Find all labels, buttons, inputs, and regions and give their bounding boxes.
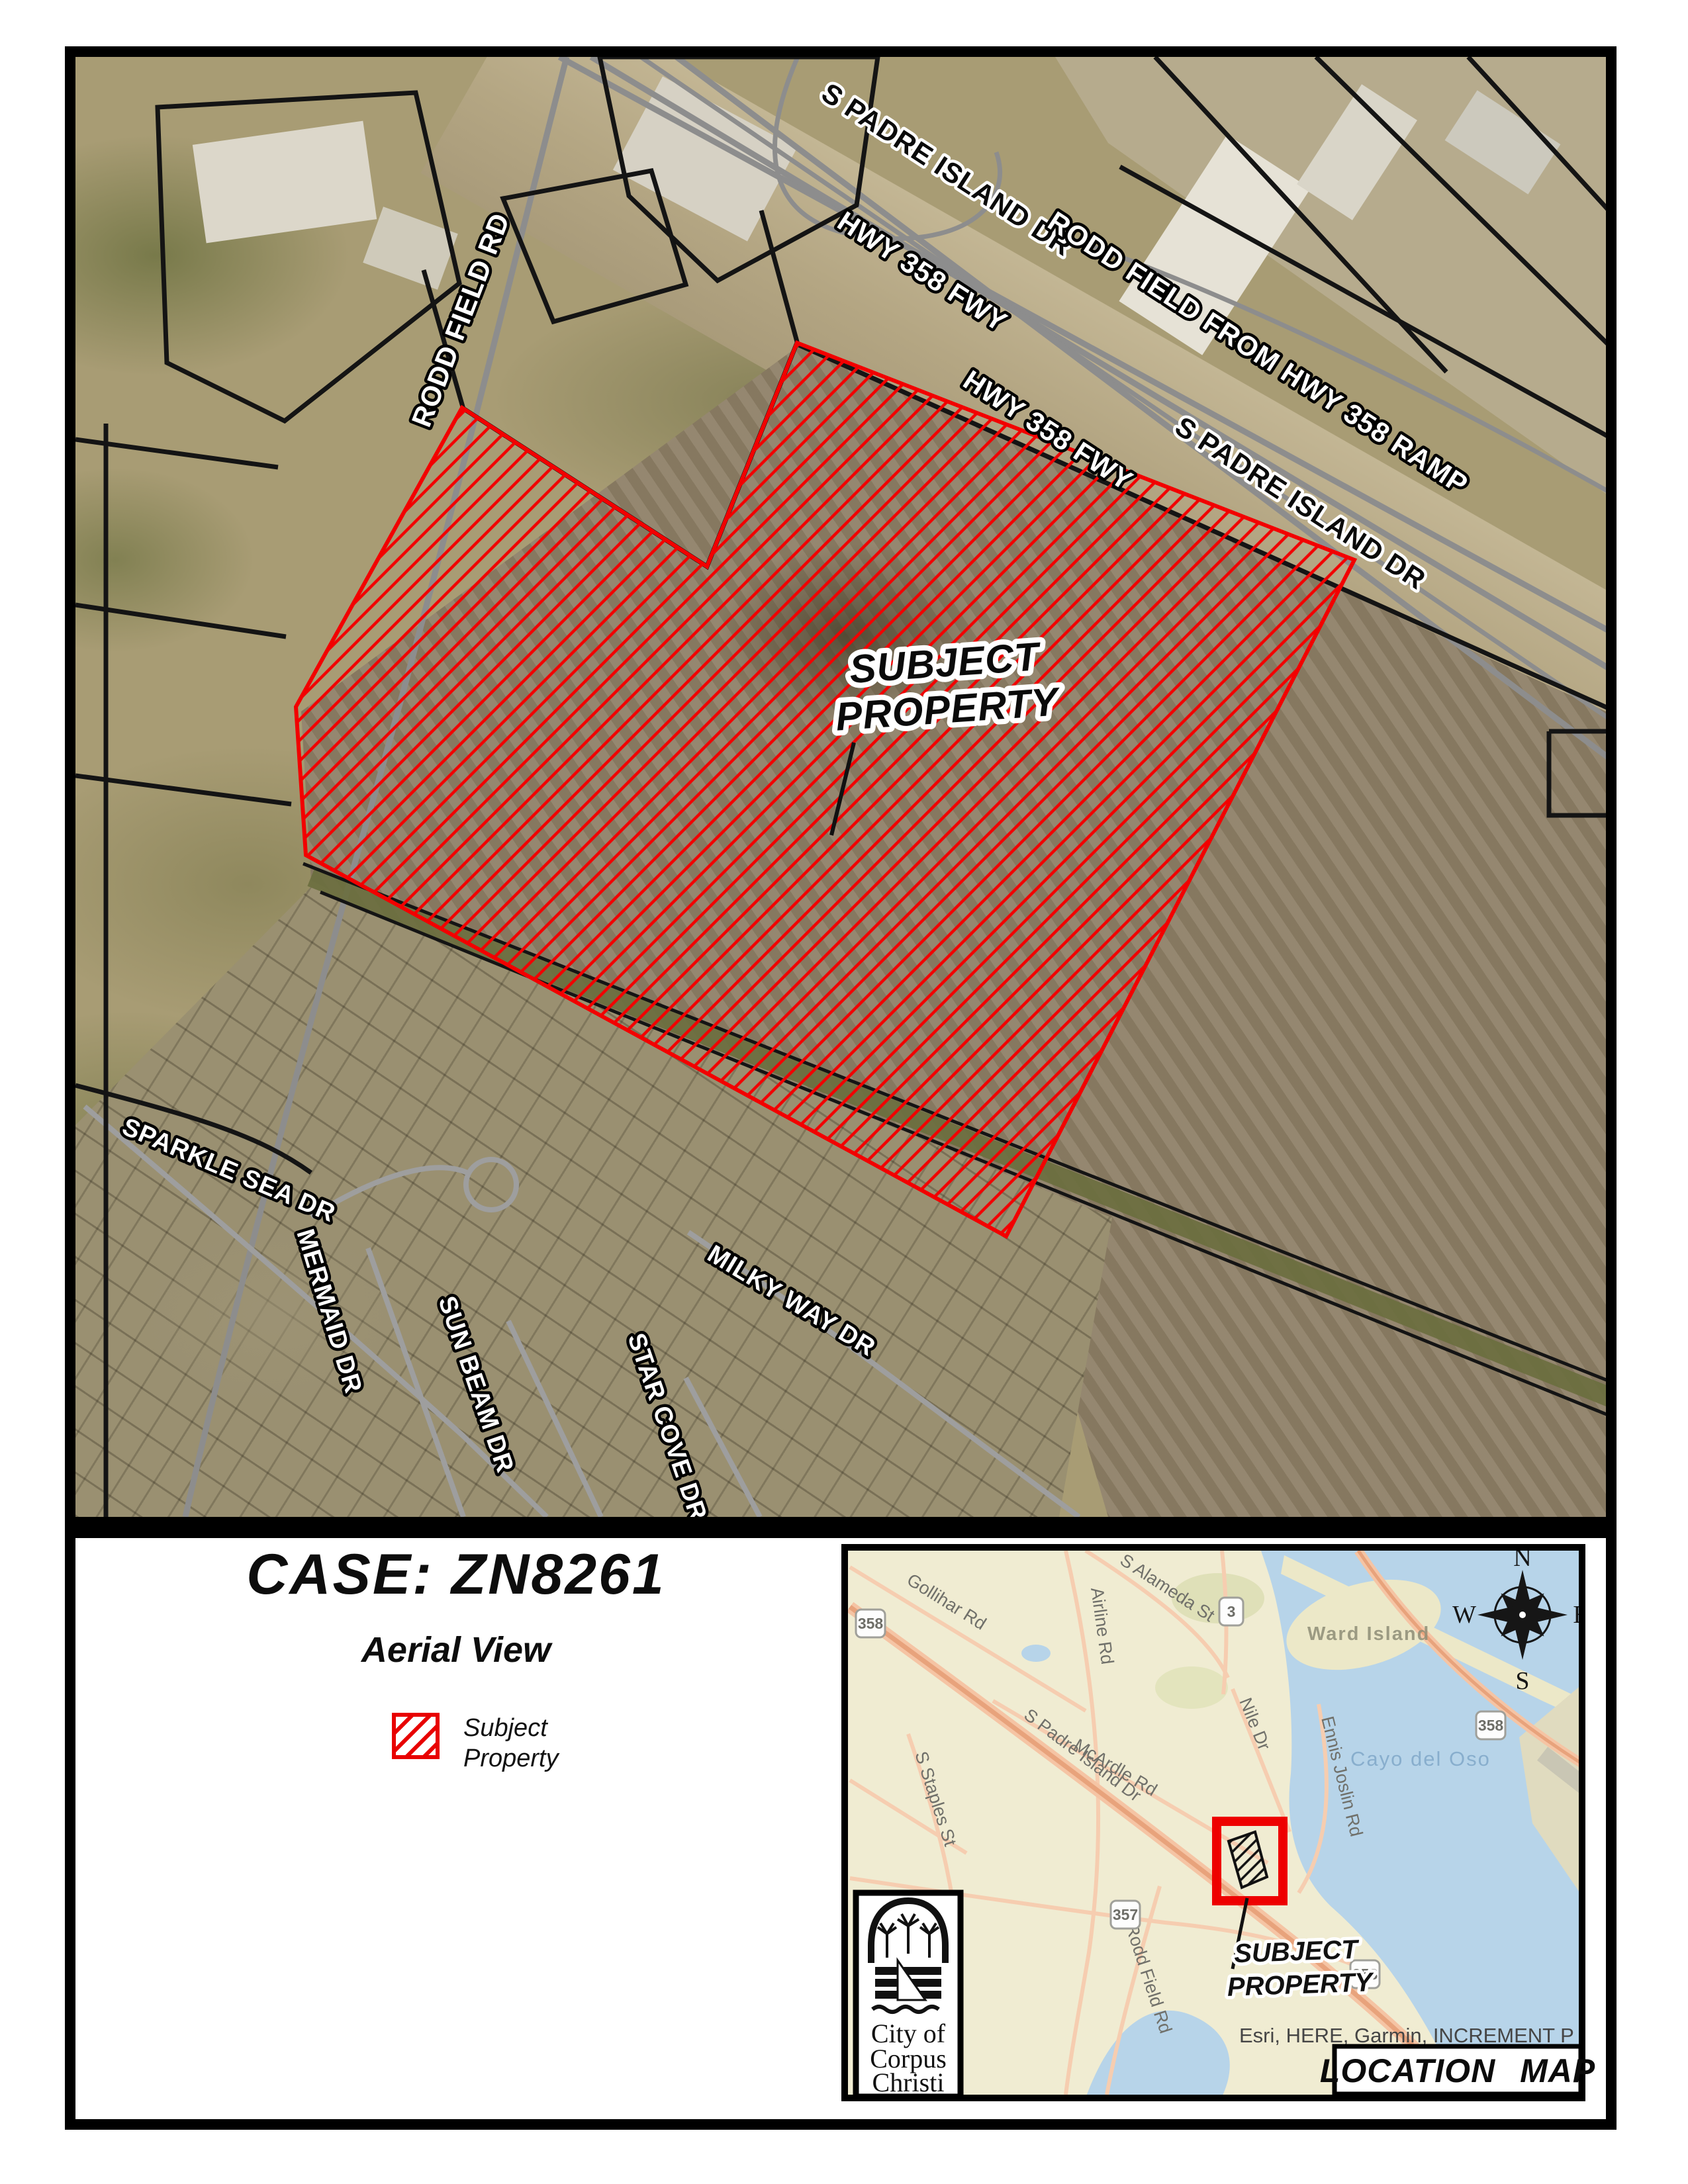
zoning-case-exhibit-page: CASE: ZN8261 Aerial View Subject Propert… — [0, 0, 1688, 2184]
legend-label-line2: Property — [463, 1743, 559, 1774]
legend-subject-property-label: Subject Property — [463, 1713, 559, 1774]
legend-subject-property-swatch — [392, 1713, 440, 1759]
aerial-map — [65, 46, 1617, 1527]
legend-label-line1: Subject — [463, 1713, 559, 1743]
map-subtitle: Aerial View — [75, 1629, 837, 1670]
info-panel — [65, 1527, 1617, 2130]
case-title: CASE: ZN8261 — [75, 1542, 837, 1608]
